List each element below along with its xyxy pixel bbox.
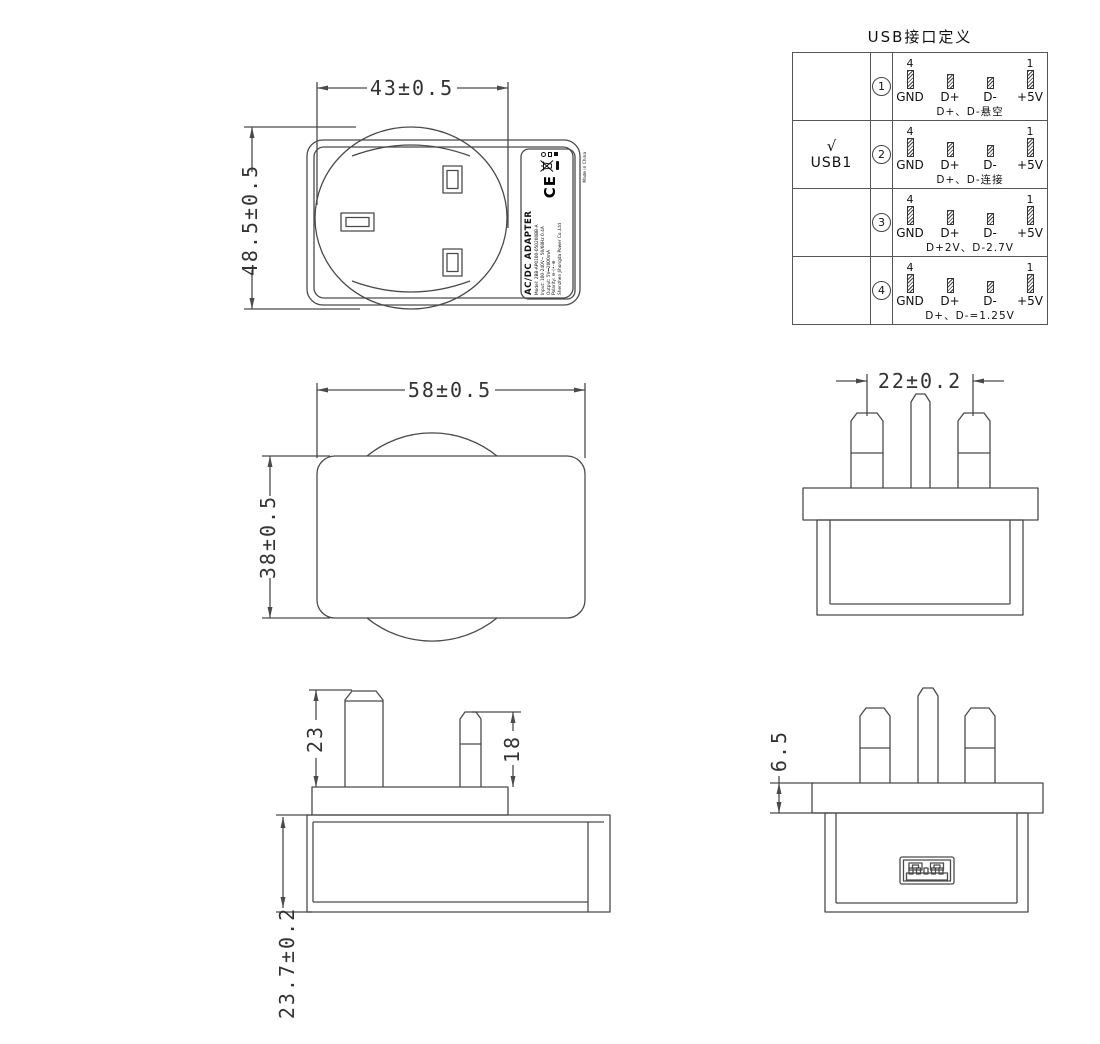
dim-pin-pitch-label: 22±0.2 xyxy=(878,369,962,393)
row-note: D+、D-连接 xyxy=(936,174,1003,187)
table-row-1: 1 4GND D+ D- 1+5V D+、D-悬空 xyxy=(793,53,1047,120)
row-note: D+、D-悬空 xyxy=(936,106,1003,119)
pin-5v: 1+5V xyxy=(1017,57,1044,104)
port-cell xyxy=(793,189,871,256)
ce-mark: CE xyxy=(541,175,559,198)
pin-connector-icon xyxy=(947,278,954,293)
table-row-3: 3 4GND D+ D- 1+5V D+2V、D-2.7V xyxy=(793,188,1047,256)
top-view-drawing xyxy=(317,433,585,641)
product-label: AC/DC ADAPTER Model: 2BB-AP0100-050200BB… xyxy=(521,148,577,300)
pin-connector-icon xyxy=(987,213,994,225)
pin-gnd: 4GND xyxy=(897,193,924,240)
front-pin-view-drawing xyxy=(803,394,1038,615)
dim-side-width-label: 58±0.5 xyxy=(408,378,492,402)
cert-box-icon xyxy=(548,152,552,157)
usb-table-title: USB接口定义 xyxy=(792,26,1048,47)
dim-side-height-label: 38±0.5 xyxy=(256,495,280,579)
side-pin-view-drawing xyxy=(307,691,610,912)
label-made-in: Made in China xyxy=(583,152,588,183)
pin-diagram-cell: 4GND D+ D- 1+5V D+2V、D-2.7V xyxy=(893,189,1047,256)
label-text-block: AC/DC ADAPTER Model: 2BB-AP0100-050200BB… xyxy=(524,202,575,295)
technical-drawing-sheet: 43±0.5 48.5±0.5 58±0.5 xyxy=(0,0,1100,1044)
pin-connector-icon xyxy=(907,206,914,225)
dim-power-pin: 18 xyxy=(472,712,524,787)
pin-connector-icon xyxy=(947,74,954,89)
dim-earth-pin-label: 23 xyxy=(303,725,327,753)
row-note: D+2V、D-2.7V xyxy=(926,242,1014,255)
dim-power-pin-label: 18 xyxy=(500,735,524,763)
usb-check: √ xyxy=(827,138,837,155)
pin-dminus: D- xyxy=(977,145,1004,172)
pin-connector-icon xyxy=(907,138,914,157)
usb-port xyxy=(900,857,954,884)
dim-pin-pitch: 22±0.2 xyxy=(836,369,1004,416)
dim-flange: 6.5 xyxy=(767,730,828,813)
dim-side-width: 58±0.5 xyxy=(317,378,585,458)
label-bar-icon xyxy=(556,162,559,171)
circled-number: 4 xyxy=(872,281,891,300)
front-usb-view-drawing xyxy=(812,688,1043,912)
pin-dplus: D+ xyxy=(937,278,964,308)
port-cell xyxy=(793,257,871,324)
pin-dminus: D- xyxy=(977,77,1004,104)
pin-connector-icon xyxy=(987,281,994,293)
table-row-4: 4 4GND D+ D- 1+5V D+、D-=1.25V xyxy=(793,256,1047,324)
pin-connector-icon xyxy=(987,77,994,89)
pin-connector-icon xyxy=(947,142,954,157)
pin-gnd: 4GND xyxy=(897,125,924,172)
pin-connector-icon xyxy=(1027,138,1034,157)
dim-back-height-label: 48.5±0.5 xyxy=(238,164,262,276)
port-cell: √ USB1 xyxy=(793,121,871,188)
table-row-2: √ USB1 2 4GND D+ D- 1+5V D+、D-连接 xyxy=(793,120,1047,188)
pin-diagram-cell: 4GND D+ D- 1+5V D+、D-悬空 xyxy=(893,53,1047,120)
pin-gnd: 4GND xyxy=(897,261,924,308)
pin-5v: 1+5V xyxy=(1017,261,1044,308)
pin-connector-icon xyxy=(947,210,954,225)
index-cell: 3 xyxy=(871,189,893,256)
pin-dplus: D+ xyxy=(937,74,964,104)
row-note: D+、D-=1.25V xyxy=(925,310,1015,323)
weee-bin-icon xyxy=(540,160,554,172)
circled-number: 1 xyxy=(872,77,891,96)
label-product-name: AC/DC ADAPTER xyxy=(524,202,534,295)
cert-square-icon xyxy=(554,153,558,157)
pin-connector-icon xyxy=(907,274,914,293)
cert-circle-icon xyxy=(541,152,546,157)
pin-5v: 1+5V xyxy=(1017,125,1044,172)
dim-back-width-label: 43±0.5 xyxy=(370,76,454,100)
pin-diagram-cell: 4GND D+ D- 1+5V D+、D-=1.25V xyxy=(893,257,1047,324)
label-maker: Shenzhen Jihongda Power Co.,Ltd xyxy=(558,202,564,295)
pin-5v: 1+5V xyxy=(1017,193,1044,240)
pin-dminus: D- xyxy=(977,281,1004,308)
dim-flange-label: 6.5 xyxy=(767,730,791,772)
usb-definition-table: 1 4GND D+ D- 1+5V D+、D-悬空 √ USB1 2 xyxy=(792,52,1048,325)
pin-connector-icon xyxy=(1027,206,1034,225)
pin-connector-icon xyxy=(1027,274,1034,293)
port-label: USB1 xyxy=(811,155,853,171)
label-marks: CE Made in China xyxy=(524,152,575,202)
pin-dminus: D- xyxy=(977,213,1004,240)
pin-dplus: D+ xyxy=(937,210,964,240)
pin-dplus: D+ xyxy=(937,142,964,172)
index-cell: 2 xyxy=(871,121,893,188)
circled-number: 2 xyxy=(872,145,891,164)
pin-gnd: 4GND xyxy=(897,57,924,104)
pin-connector-icon xyxy=(1027,70,1034,89)
dim-body-depth-label: 23.7±0.2 xyxy=(275,907,299,1019)
index-cell: 1 xyxy=(871,53,893,120)
pin-connector-icon xyxy=(907,70,914,89)
dim-side-height: 38±0.5 xyxy=(256,456,330,618)
pin-diagram-cell: 4GND D+ D- 1+5V D+、D-连接 xyxy=(893,121,1047,188)
port-cell xyxy=(793,53,871,120)
pin-connector-icon xyxy=(987,145,994,157)
circled-number: 3 xyxy=(872,213,891,232)
index-cell: 4 xyxy=(871,257,893,324)
